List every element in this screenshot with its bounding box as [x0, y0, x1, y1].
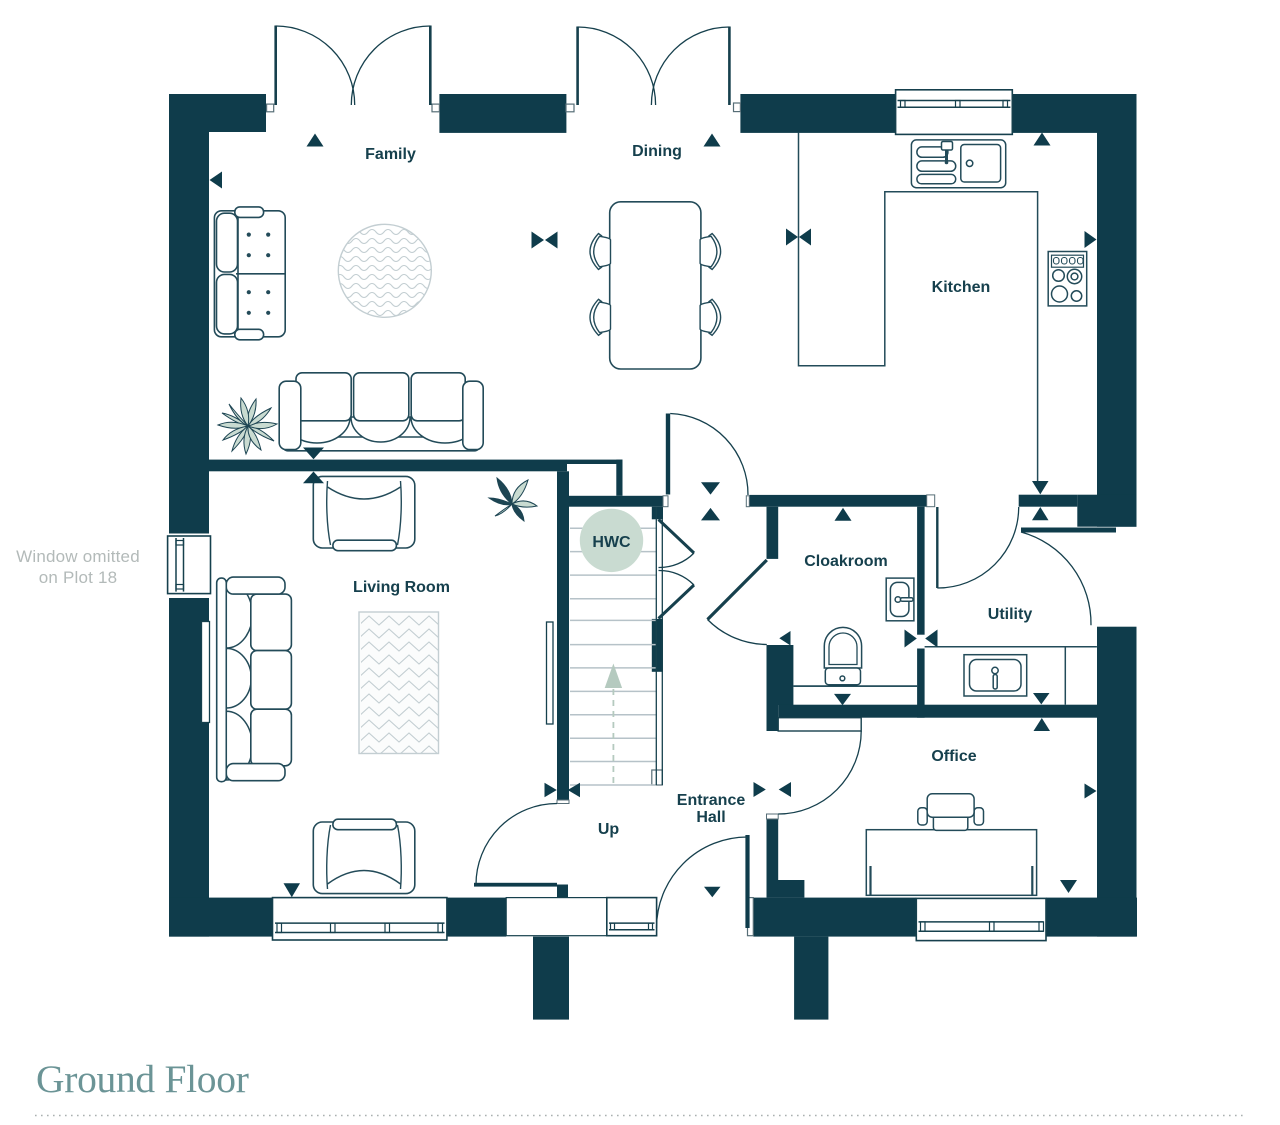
svg-text:Living Room: Living Room [353, 579, 450, 596]
svg-text:Entrance: Entrance [677, 792, 746, 809]
svg-text:HWC: HWC [592, 534, 631, 551]
svg-text:Utility: Utility [988, 606, 1033, 623]
svg-text:Cloakroom: Cloakroom [804, 553, 888, 570]
svg-text:Up: Up [598, 821, 620, 838]
svg-text:Kitchen: Kitchen [932, 279, 991, 296]
svg-text:on Plot 18: on Plot 18 [39, 568, 118, 587]
svg-text:Family: Family [365, 146, 416, 163]
svg-text:Office: Office [931, 748, 976, 765]
svg-text:Window omitted: Window omitted [16, 547, 140, 566]
svg-text:Hall: Hall [696, 809, 725, 826]
svg-text:Ground Floor: Ground Floor [36, 1057, 249, 1101]
svg-text:Dining: Dining [632, 143, 682, 160]
